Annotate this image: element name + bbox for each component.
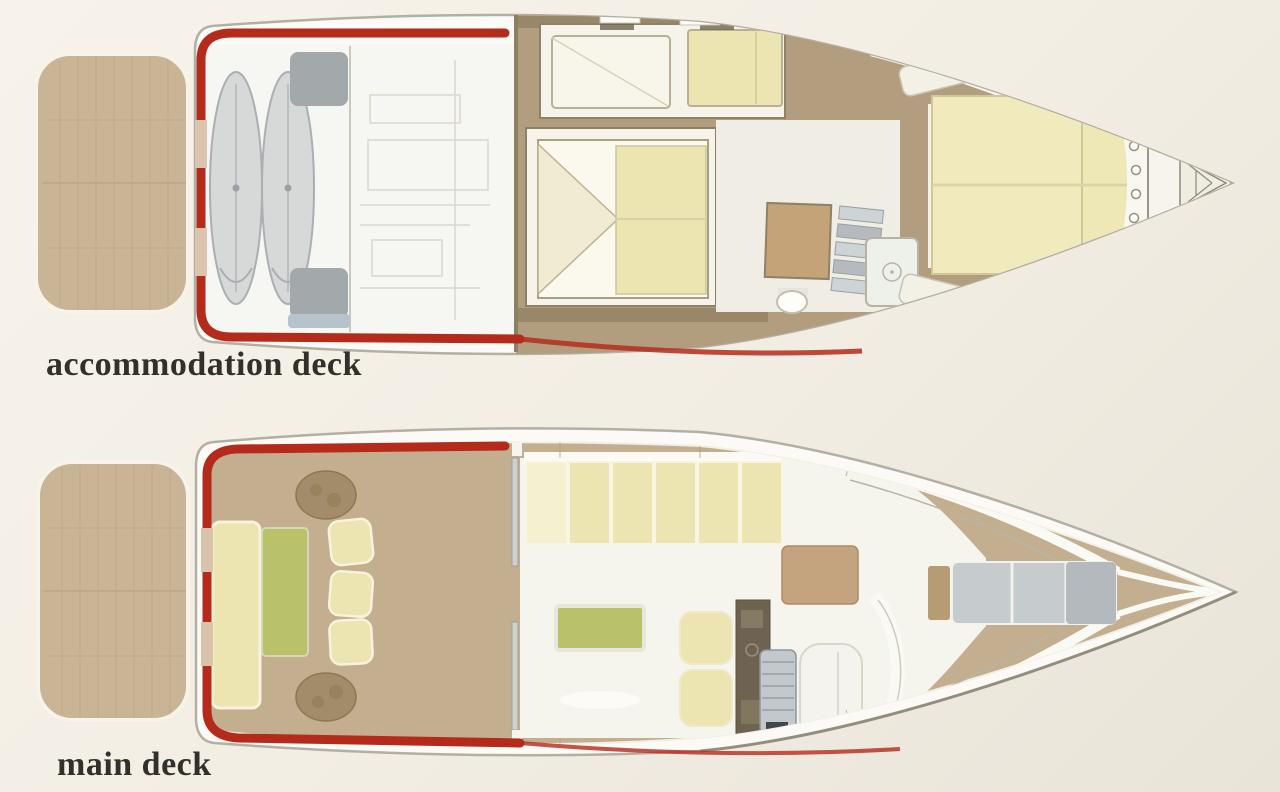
sideboard-cabinet xyxy=(782,546,858,604)
cockpit-bench xyxy=(212,522,260,708)
boarding-gate-bottom xyxy=(195,228,207,276)
twin-guest-cabin xyxy=(540,22,785,118)
salon-sofa xyxy=(526,462,782,544)
sliding-door-top xyxy=(512,458,518,566)
sunpad-console xyxy=(928,566,950,620)
corridor-and-head xyxy=(716,120,918,313)
cabin-door xyxy=(765,203,832,279)
salon-table xyxy=(556,606,644,650)
main-deck-label: main deck xyxy=(57,746,212,784)
swim-platform xyxy=(36,54,188,312)
cockpit-table xyxy=(262,528,308,656)
boarding-gate-top xyxy=(201,528,213,572)
engine-port xyxy=(210,72,262,304)
accommodation-deck-label: accommodation deck xyxy=(46,346,362,384)
boarding-gate-top xyxy=(195,120,207,168)
battery-tray xyxy=(288,314,350,328)
bow-anchor-locker xyxy=(1126,106,1233,260)
galley-sink xyxy=(741,610,763,628)
sliding-door-bottom xyxy=(512,622,518,730)
swim-platform xyxy=(38,462,188,720)
rug xyxy=(560,691,640,709)
cockpit-chairs xyxy=(328,518,374,665)
master-cabin xyxy=(526,128,716,306)
machinery-box-bottom xyxy=(290,268,348,318)
yacht-deck-plans: accommodation deck main deck xyxy=(0,0,1280,792)
boarding-gate-bottom xyxy=(201,622,213,666)
toilet xyxy=(777,291,807,313)
single-bed-right xyxy=(688,30,782,106)
machinery-box-top xyxy=(290,52,348,106)
foredeck-sunpad xyxy=(928,562,1116,624)
deck-plan-main xyxy=(0,400,1280,792)
deck-plan-accommodation xyxy=(0,0,1280,400)
engine-room xyxy=(206,44,516,334)
